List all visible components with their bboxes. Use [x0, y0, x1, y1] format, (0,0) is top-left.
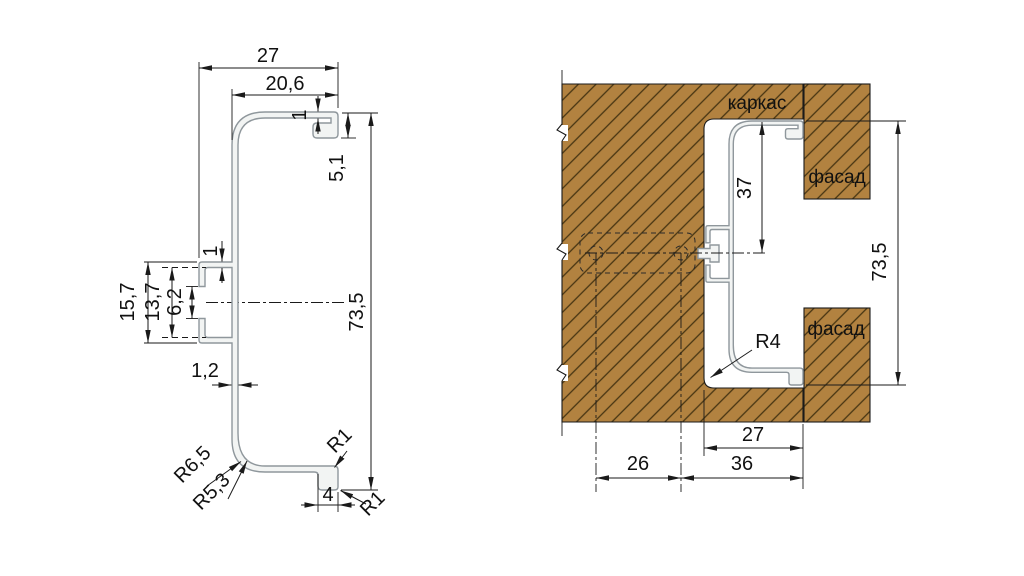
dim-label-radius-bottom-foot: R1	[356, 487, 390, 521]
label-facade-top: фасад	[808, 167, 865, 188]
installation-view: каркас фасад фасад 37 73,5 R4 27 26 36	[556, 70, 906, 492]
dim-label-clip-arm: 1	[200, 245, 222, 256]
dim-label-radius-top-foot: R1	[323, 424, 357, 458]
dim-label-arm-width: 20,6	[266, 73, 305, 95]
break-mark	[556, 243, 568, 260]
dim-label-overall-width: 27	[257, 45, 279, 67]
technical-drawing: 27 20,6 1 5,1 73,5 15,7 13,7 6,2 1 1,2 R…	[0, 0, 1024, 576]
profile-cross-section	[199, 112, 338, 490]
dim-label-axis-offset: 26	[627, 453, 649, 475]
drawing-canvas: 27 20,6 1 5,1 73,5 15,7 13,7 6,2 1 1,2 R…	[0, 0, 1024, 576]
dim-label-depth-to-axis: 37	[734, 177, 756, 199]
dim-label-lip-depth: 5,1	[326, 154, 348, 182]
break-mark	[556, 124, 568, 141]
dim-label-overall-height: 73,5	[346, 293, 368, 332]
dim-label-wall-thickness: 1,2	[191, 360, 219, 382]
break-mark	[556, 364, 568, 381]
dim-label-edge-offset: 36	[731, 453, 753, 475]
profile-section-view: 27 20,6 1 5,1 73,5 15,7 13,7 6,2 1 1,2 R…	[117, 45, 390, 521]
dim-label-corner-radius: R4	[755, 331, 781, 353]
dim-label-foot-width: 4	[322, 484, 333, 506]
dim-label-clip-height: 15,7	[117, 283, 139, 322]
leader-radius-inner	[228, 461, 247, 499]
dim-label-groove-width: 27	[742, 424, 764, 446]
label-facade-bottom: фасад	[807, 319, 864, 340]
dim-label-clip-opening: 6,2	[164, 288, 186, 316]
dim-label-clip-inner: 13,7	[142, 283, 164, 322]
label-carcass: каркас	[728, 93, 787, 114]
dim-label-lip-gap: 1	[289, 109, 311, 120]
dim-label-overall-height: 73,5	[869, 243, 891, 282]
